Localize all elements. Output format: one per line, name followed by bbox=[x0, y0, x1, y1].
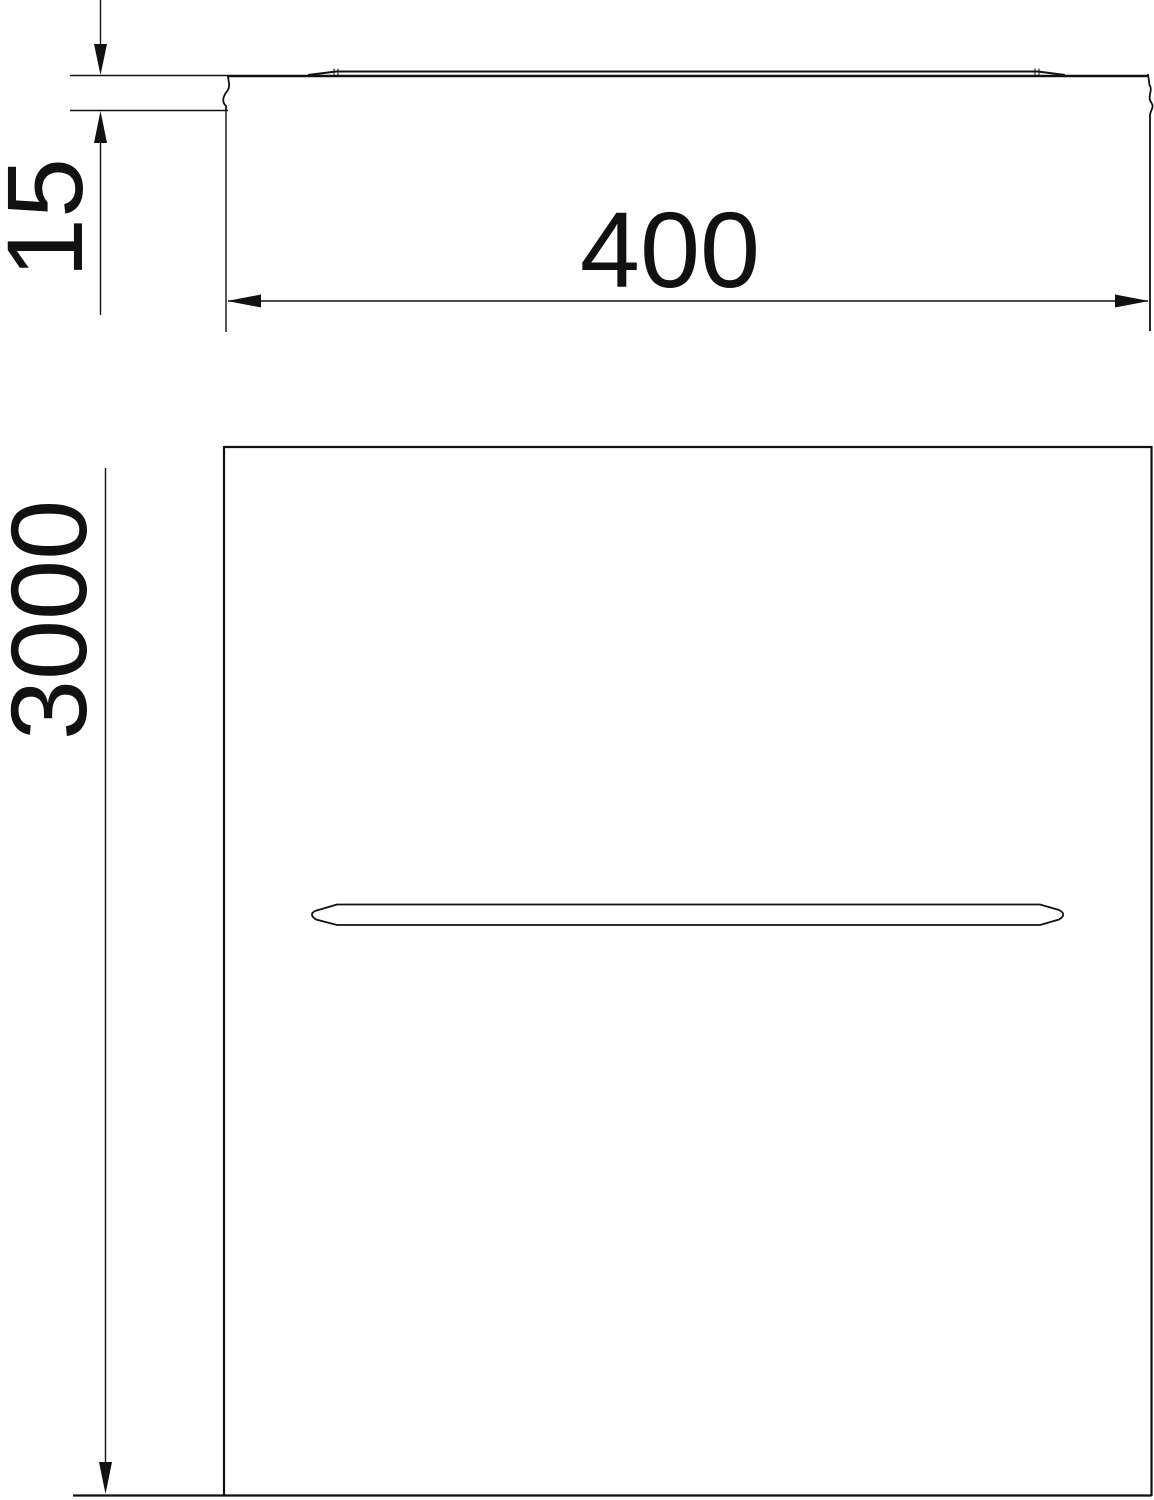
technical-drawing-canvas: 15 400 3000 bbox=[0, 0, 1154, 1500]
dim-3000-arrow-down-icon bbox=[99, 1462, 112, 1494]
cover-profile-rib-line bbox=[308, 72, 1065, 76]
break-line-right-extension bbox=[1148, 74, 1153, 331]
dimension-15: 15 bbox=[0, 0, 228, 315]
dimension-400: 400 bbox=[226, 110, 1149, 332]
dimension-3000: 3000 bbox=[0, 468, 112, 1494]
dim-15-arrow-down-icon bbox=[94, 44, 107, 75]
dim-400-arrow-right-icon bbox=[1115, 295, 1149, 308]
break-line-left bbox=[223, 76, 229, 110]
dim-400-arrow-left-icon bbox=[227, 295, 261, 308]
plan-view bbox=[73, 446, 1152, 1496]
dim-400-label: 400 bbox=[580, 189, 760, 310]
embossed-rib-slot bbox=[312, 905, 1063, 926]
dim-3000-label: 3000 bbox=[0, 500, 109, 740]
dim-15-arrow-up-icon bbox=[94, 111, 107, 143]
dim-15-label: 15 bbox=[0, 158, 105, 278]
